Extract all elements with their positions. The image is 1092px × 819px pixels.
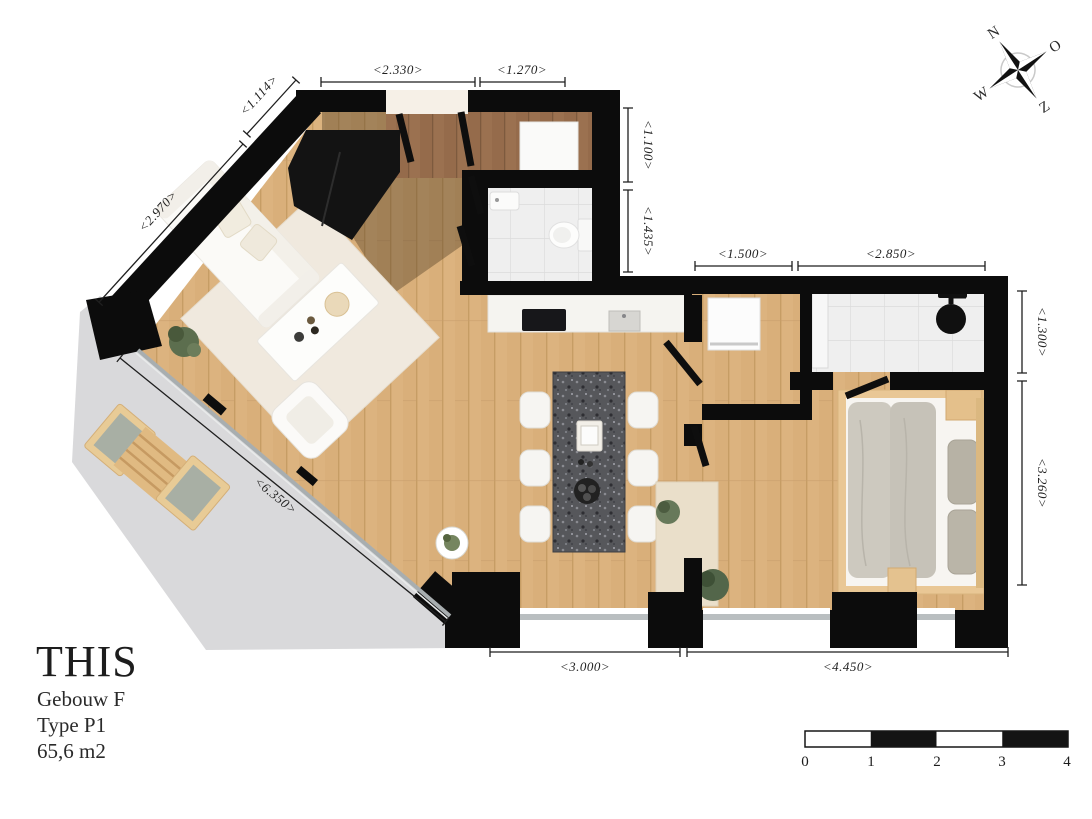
dimension-label: <1.100> bbox=[641, 120, 656, 170]
dimension-label: <1.114> bbox=[237, 72, 281, 119]
unit-type: Type P1 bbox=[37, 713, 106, 737]
dimension-right-top-lower: <1.435> bbox=[623, 190, 656, 272]
chair-left-3 bbox=[520, 506, 550, 542]
floor-area: 65,6 m2 bbox=[37, 739, 106, 763]
storage-bottom-wall bbox=[702, 404, 812, 420]
kitchen-sink bbox=[609, 311, 640, 331]
side-table-with-plant bbox=[436, 527, 468, 559]
wall-shelf bbox=[976, 398, 984, 588]
fruit-2 bbox=[588, 485, 596, 493]
hall-cabinet bbox=[520, 122, 578, 176]
bedroom-top-wall-right bbox=[890, 372, 984, 390]
hallway-wall-seg3 bbox=[684, 558, 702, 612]
east-wall bbox=[984, 276, 1008, 648]
pillow-1 bbox=[948, 440, 978, 504]
north-wall-right-section bbox=[620, 276, 1008, 294]
kitchen-counter bbox=[488, 295, 688, 332]
rain-shower-head bbox=[936, 304, 966, 334]
dimension-label: <3.000> bbox=[560, 659, 610, 674]
plan-title: THIS bbox=[36, 637, 138, 686]
dimension-bottom-right: <4.450> bbox=[687, 647, 1008, 674]
hall-right-wall bbox=[592, 90, 620, 285]
island-bottle-2 bbox=[587, 461, 593, 467]
dimension-label: <2.330> bbox=[373, 62, 423, 77]
dimension-bottom-left: <3.000> bbox=[490, 647, 680, 674]
bathroom-sink bbox=[490, 192, 519, 210]
bedroom-top-wall-left bbox=[790, 372, 833, 390]
hallway-wall-seg1 bbox=[684, 295, 702, 342]
chair-left-2 bbox=[520, 450, 550, 486]
dimension-right-top-upper: <1.100> bbox=[623, 108, 656, 182]
dimension-label: <1.500> bbox=[718, 246, 768, 261]
dimension-hall-top: <1.270> bbox=[480, 62, 565, 87]
duvet-left bbox=[848, 402, 892, 578]
dimension-right-side-upper: <1.300> bbox=[1017, 291, 1050, 373]
shower-glass-door bbox=[812, 293, 828, 368]
compass-south-label: Z bbox=[1037, 98, 1053, 116]
toilet-seat bbox=[553, 227, 571, 243]
dimension-label: <1.435> bbox=[641, 206, 656, 256]
scale-bar: 0 1 2 3 4 bbox=[801, 731, 1071, 770]
scale-seg-2 bbox=[871, 731, 937, 747]
pillow-2 bbox=[948, 510, 978, 574]
scale-tick-2: 2 bbox=[933, 754, 941, 770]
dimension-label: <4.450> bbox=[823, 659, 873, 674]
fruit-3 bbox=[583, 493, 591, 501]
compass-west-label: W bbox=[971, 84, 992, 106]
dimension-label: <1.270> bbox=[497, 62, 547, 77]
toilet-tank bbox=[578, 219, 593, 251]
bench-plant-inner bbox=[658, 501, 670, 513]
title-block: THIS Gebouw F Type P1 65,6 m2 bbox=[36, 637, 138, 763]
island-bottle-1 bbox=[578, 459, 584, 465]
entrance-niche bbox=[386, 90, 468, 114]
chair-right-1 bbox=[628, 392, 658, 428]
scale-tick-1: 1 bbox=[867, 754, 875, 770]
dimension-label: <1.300> bbox=[1035, 307, 1050, 357]
building-name: Gebouw F bbox=[37, 687, 125, 711]
dimension-living-top: <2.330> bbox=[321, 62, 475, 87]
kitchen-faucet bbox=[622, 314, 626, 318]
island-coffee-machine bbox=[581, 426, 598, 445]
compass-rose: N O Z W bbox=[947, 0, 1089, 143]
window-glass-3 bbox=[917, 614, 955, 620]
storage-right-wall bbox=[800, 285, 812, 420]
window-glass-1 bbox=[520, 614, 648, 620]
scale-seg-3 bbox=[937, 731, 1003, 747]
storage-room bbox=[708, 298, 760, 350]
dimension-label: <2.850> bbox=[866, 246, 916, 261]
scale-tick-0: 0 bbox=[801, 754, 809, 770]
chair-right-2 bbox=[628, 450, 658, 486]
window-glass-2 bbox=[703, 614, 830, 620]
scale-seg-1 bbox=[805, 731, 871, 747]
chair-left-1 bbox=[520, 392, 550, 428]
dimension-kitchen-top: <1.500> bbox=[695, 246, 792, 271]
shower-room-floor-tiles bbox=[812, 293, 984, 372]
bathroom-top-wall bbox=[462, 170, 592, 188]
south-pillar-right bbox=[832, 592, 917, 612]
floor-plan-page: <2.330> <1.270> <1.114> <2.970> <1.100> … bbox=[0, 0, 1092, 819]
washing-machine bbox=[708, 298, 760, 350]
dimension-bedroom-top: <2.850> bbox=[798, 246, 985, 271]
floor-plan-drawing: <2.330> <1.270> <1.114> <2.970> <1.100> … bbox=[0, 0, 1092, 819]
duvet-right bbox=[890, 402, 936, 578]
sink-faucet bbox=[495, 198, 499, 202]
fruit-1 bbox=[578, 484, 586, 492]
chair-right-3 bbox=[628, 506, 658, 542]
cooktop bbox=[522, 309, 566, 331]
compass-north-label: N bbox=[985, 23, 1003, 42]
scale-tick-4: 4 bbox=[1063, 754, 1071, 770]
dimension-label: <3.260> bbox=[1035, 458, 1050, 508]
scale-tick-3: 3 bbox=[998, 754, 1006, 770]
bedroom bbox=[838, 390, 984, 606]
dimension-right-side-lower: <3.260> bbox=[1017, 381, 1050, 585]
scale-seg-4 bbox=[1002, 731, 1068, 747]
compass-east-label: O bbox=[1047, 37, 1065, 56]
